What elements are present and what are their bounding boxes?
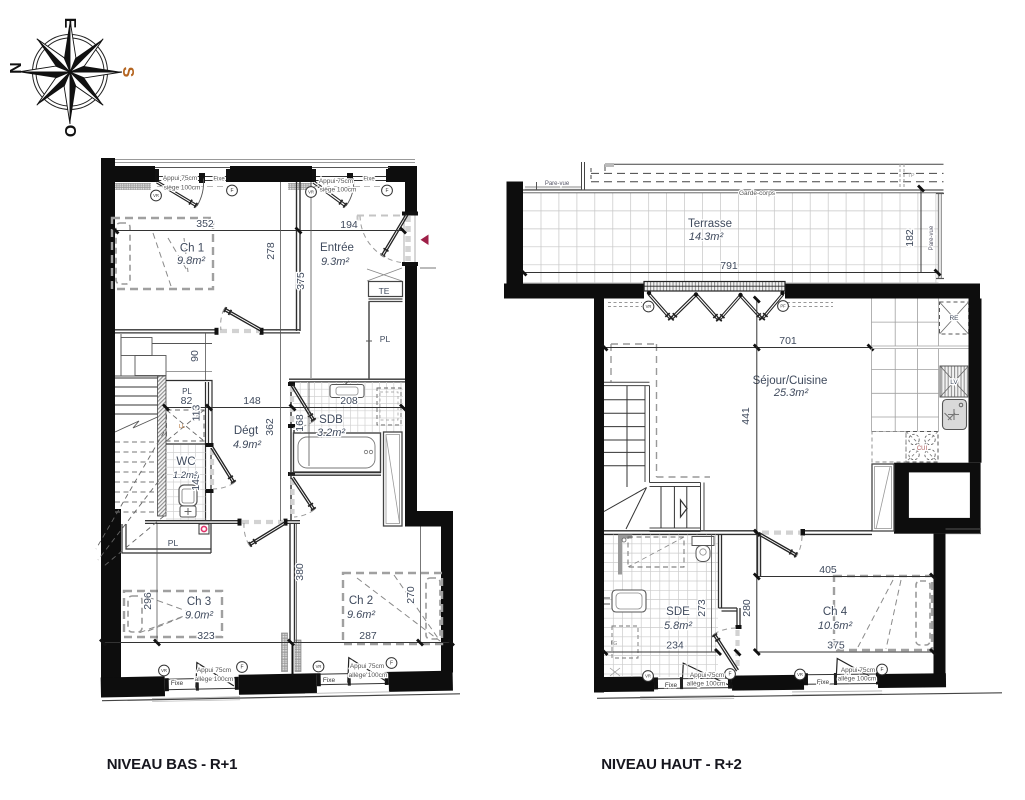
svg-text:90: 90 (189, 350, 201, 362)
svg-text:Ch 2: Ch 2 (349, 595, 373, 607)
svg-text:405: 405 (819, 564, 837, 576)
svg-text:Appui 75cm: Appui 75cm (350, 663, 384, 670)
svg-text:Dégt: Dégt (234, 425, 259, 437)
svg-text:375: 375 (827, 640, 845, 652)
svg-text:270: 270 (405, 586, 417, 604)
svg-text:168: 168 (294, 414, 306, 432)
svg-text:WC: WC (176, 456, 195, 468)
svg-text:F: F (385, 188, 388, 194)
svg-text:NIVEAU HAUT - R+2: NIVEAU HAUT - R+2 (601, 756, 741, 773)
svg-text:VR: VR (161, 668, 167, 673)
svg-text:F: F (880, 667, 883, 673)
svg-text:3.2m²: 3.2m² (317, 427, 345, 439)
svg-text:362: 362 (264, 418, 276, 436)
svg-text:1.2m²: 1.2m² (173, 470, 198, 481)
svg-text:323: 323 (197, 630, 215, 642)
svg-text:441: 441 (740, 407, 752, 425)
svg-text:Fixe: Fixe (213, 177, 225, 183)
svg-text:Fixe: Fixe (323, 677, 336, 684)
svg-text:VR: VR (797, 672, 803, 677)
svg-text:allège 100cm: allège 100cm (838, 676, 877, 683)
svg-text:280: 280 (741, 599, 753, 617)
svg-text:Garde-corps: Garde-corps (739, 190, 776, 197)
svg-text:9.0m²: 9.0m² (185, 610, 213, 622)
svg-text:14.3m²: 14.3m² (689, 231, 724, 243)
svg-text:Séjour/Cuisine: Séjour/Cuisine (753, 375, 828, 387)
svg-text:CUI: CUI (917, 446, 928, 452)
svg-text:Appui 75cm: Appui 75cm (319, 178, 353, 185)
svg-text:Pare-vue: Pare-vue (545, 181, 570, 187)
svg-text:TP: TP (907, 173, 914, 179)
svg-text:25.3m²: 25.3m² (773, 387, 809, 399)
svg-text:Pare-vue: Pare-vue (929, 225, 935, 250)
svg-text:Appui 75cm: Appui 75cm (197, 667, 231, 674)
svg-text:allège 100cm: allège 100cm (349, 672, 388, 679)
svg-text:LG: LG (611, 641, 618, 647)
svg-text:PF: PF (780, 304, 786, 309)
svg-text:296: 296 (142, 592, 154, 610)
svg-text:F: F (728, 672, 731, 678)
svg-text:Ch 4: Ch 4 (823, 606, 848, 618)
svg-text:allège 100cm: allège 100cm (195, 676, 234, 683)
svg-text:NIVEAU BAS - R+1: NIVEAU BAS - R+1 (107, 756, 238, 773)
svg-text:82: 82 (181, 395, 193, 407)
svg-text:791: 791 (720, 260, 738, 272)
svg-text:5.8m²: 5.8m² (664, 620, 692, 632)
svg-text:LL: LL (179, 424, 185, 430)
svg-text:F: F (240, 665, 243, 671)
svg-text:113: 113 (191, 404, 203, 421)
svg-text:4.9m²: 4.9m² (233, 439, 261, 451)
svg-text:380: 380 (294, 563, 306, 581)
svg-text:208: 208 (340, 395, 358, 407)
svg-text:273: 273 (696, 599, 708, 617)
svg-text:VR: VR (153, 193, 159, 198)
svg-text:9.3m²: 9.3m² (321, 256, 349, 268)
svg-text:Terrasse: Terrasse (688, 218, 732, 230)
svg-text:234: 234 (666, 640, 684, 652)
svg-text:9.6m²: 9.6m² (347, 609, 375, 621)
svg-text:9.8m²: 9.8m² (177, 255, 205, 267)
svg-text:SDB: SDB (319, 414, 343, 426)
svg-text:siège 100cm: siège 100cm (164, 185, 201, 192)
svg-text:PL: PL (380, 334, 391, 344)
svg-text:375: 375 (295, 272, 307, 290)
svg-text:Fixe: Fixe (363, 177, 375, 183)
svg-text:Appui 75cm: Appui 75cm (163, 175, 197, 182)
svg-text:352: 352 (196, 218, 214, 230)
svg-text:RE: RE (949, 315, 959, 322)
svg-text:Fixe: Fixe (171, 680, 184, 687)
svg-text:287: 287 (359, 630, 377, 642)
svg-text:allège 100cm: allège 100cm (687, 681, 726, 688)
svg-text:O: O (61, 125, 78, 137)
svg-text:148: 148 (243, 395, 261, 407)
svg-text:PL: PL (168, 538, 179, 548)
svg-text:SDE: SDE (666, 606, 690, 618)
svg-text:VR: VR (646, 304, 652, 309)
svg-text:Appui 75cm: Appui 75cm (690, 672, 724, 679)
svg-text:VR: VR (316, 664, 322, 669)
svg-text:278: 278 (265, 242, 277, 260)
svg-text:F: F (390, 661, 393, 667)
svg-text:N: N (6, 62, 23, 74)
svg-text:Ch 3: Ch 3 (187, 596, 211, 608)
svg-text:TE: TE (379, 286, 390, 296)
svg-text:F: F (230, 188, 233, 194)
svg-text:Ch 1: Ch 1 (180, 243, 204, 255)
svg-text:Fixe: Fixe (665, 682, 678, 689)
svg-text:182: 182 (904, 229, 916, 247)
svg-text:194: 194 (340, 219, 358, 231)
svg-text:LV: LV (950, 379, 958, 386)
svg-text:E: E (61, 18, 78, 29)
svg-text:S: S (119, 67, 136, 78)
svg-text:siège 100cm: siège 100cm (320, 187, 357, 194)
svg-text:Fixe: Fixe (817, 679, 830, 686)
svg-text:701: 701 (779, 335, 797, 347)
svg-text:Appui 75cm: Appui 75cm (841, 667, 875, 674)
svg-text:VR: VR (645, 674, 651, 679)
svg-text:10.6m²: 10.6m² (818, 620, 853, 632)
svg-text:Entrée: Entrée (320, 242, 354, 254)
svg-text:VR: VR (308, 190, 314, 195)
